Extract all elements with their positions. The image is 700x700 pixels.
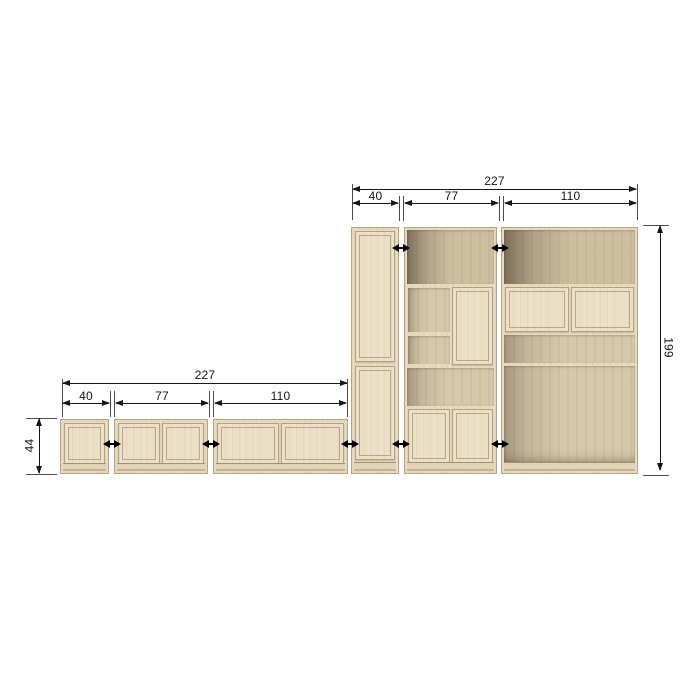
dim-label-low-segment-77: 77 [116, 390, 208, 403]
dim-label-tall-height: 199 [662, 328, 675, 368]
extension-line [399, 196, 400, 221]
cabinet-door [281, 423, 344, 464]
dimension-line-segment [505, 203, 636, 204]
dim-label-low-height: 44 [24, 426, 37, 466]
dimension-line-segment [63, 403, 109, 404]
dim-label-tall-segment-77: 77 [405, 190, 498, 203]
open-compartment [407, 230, 494, 284]
dimension-line-segment [353, 203, 398, 204]
extension-line [643, 475, 669, 476]
low-cabinet-40 [60, 419, 109, 474]
cabinet-door [452, 409, 493, 463]
dim-label-low-segment-40: 40 [63, 390, 109, 403]
cabinet-door [452, 287, 493, 365]
dim-label-tall-segment-40: 40 [353, 190, 398, 203]
wall-cabinet-door [571, 287, 634, 332]
connector-arrow-icon [491, 440, 509, 448]
dimension-line-height [39, 419, 40, 473]
open-compartment [504, 230, 635, 284]
plinth [216, 463, 345, 471]
dimension-line-segment [405, 203, 498, 204]
extension-line [499, 196, 500, 221]
cabinet-door [64, 423, 105, 464]
plinth [504, 462, 635, 471]
tall-column-40 [351, 227, 399, 474]
cabinet-door [355, 366, 395, 460]
extension-line [110, 391, 111, 417]
dim-label-low-segment-110: 110 [215, 390, 346, 403]
dimension-line-segment [215, 403, 346, 404]
open-shelf-compartment [407, 368, 494, 406]
connector-arrow-icon [202, 440, 220, 448]
connector-arrow-icon [392, 440, 410, 448]
plinth [117, 463, 205, 471]
cabinet-door [162, 423, 204, 464]
dim-label-low-total-width: 227 [63, 369, 347, 382]
connector-arrow-icon [491, 244, 509, 252]
cabinet-door [217, 423, 279, 464]
open-cubby [408, 288, 450, 332]
open-cubby [408, 336, 450, 364]
connector-arrow-icon [103, 440, 121, 448]
connector-arrow-icon [341, 440, 359, 448]
connector-arrow-icon [392, 244, 410, 252]
open-shelf-compartment [504, 335, 635, 363]
low-cabinet-77 [114, 419, 208, 474]
dim-label-tall-total-width: 227 [353, 175, 636, 188]
tall-cabinet-door [355, 231, 395, 362]
extension-line [209, 391, 210, 417]
extension-line [26, 474, 57, 475]
plinth [63, 463, 106, 471]
open-desk-compartment [504, 366, 635, 462]
dimension-line-segment [116, 403, 208, 404]
cabinet-dimension-diagram: 227 40 77 110 199 227 40 77 110 44 [0, 0, 700, 700]
dimension-line-total-width [63, 383, 347, 384]
dim-label-tall-segment-110: 110 [505, 190, 636, 203]
tall-column-77 [404, 227, 497, 474]
wall-cabinet-door [505, 287, 569, 332]
plinth [407, 462, 494, 471]
tall-column-110 [501, 227, 638, 474]
cabinet-door [118, 423, 160, 464]
cabinet-door [408, 409, 450, 463]
extension-line [643, 225, 669, 226]
plinth [354, 462, 396, 471]
low-cabinet-110 [213, 419, 348, 474]
extension-line [637, 184, 638, 220]
